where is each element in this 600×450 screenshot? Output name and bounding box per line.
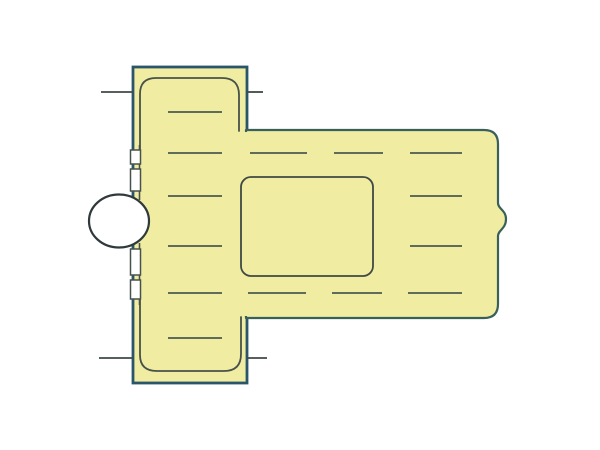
part-diagram [0, 0, 600, 450]
main-housing-body [246, 130, 506, 318]
edge-notch [131, 169, 141, 191]
mounting-flange-outline [133, 67, 247, 383]
side-port-ellipse [89, 195, 149, 248]
edge-notch [131, 280, 141, 299]
part-diagram-canvas [0, 0, 600, 450]
edge-notch [131, 249, 141, 275]
flange-body-junction-patch [243, 132, 251, 316]
edge-notch [131, 150, 141, 164]
